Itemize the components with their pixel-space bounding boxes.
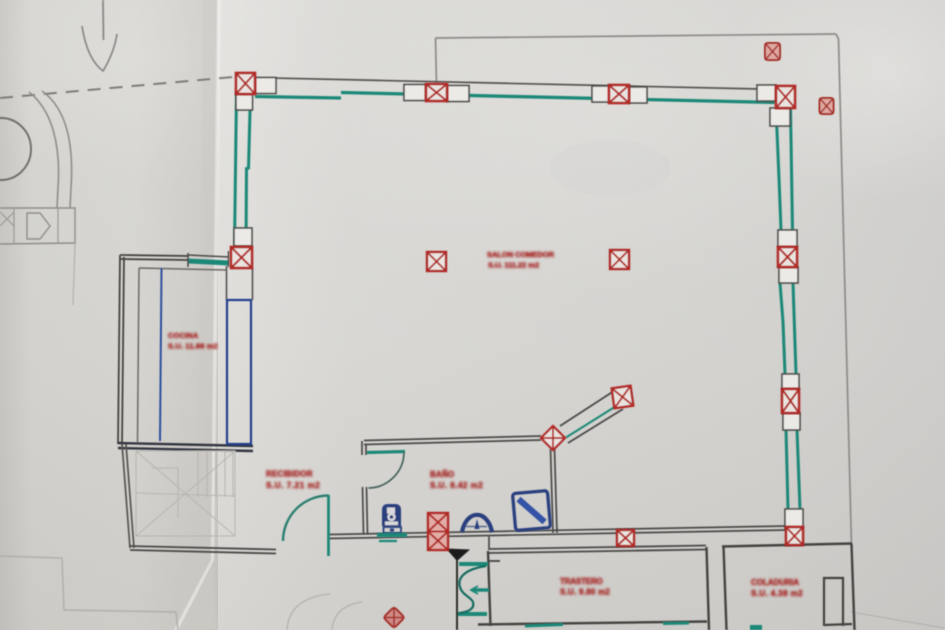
svg-text:RECIBIDOR: RECIBIDOR: [266, 470, 313, 479]
svg-text:S.U. 11.88 m2: S.U. 11.88 m2: [168, 342, 218, 351]
svg-text:SALON COMEDOR: SALON COMEDOR: [487, 250, 555, 259]
svg-text:COLADURIA: COLADURIA: [751, 578, 799, 587]
svg-text:TRASTERO: TRASTERO: [560, 577, 603, 586]
svg-text:S.U. 4.38 m2: S.U. 4.38 m2: [751, 589, 803, 598]
svg-text:S.U. 8.42 m2: S.U. 8.42 m2: [430, 481, 483, 490]
svg-text:S.U. 7.21 m2: S.U. 7.21 m2: [266, 481, 320, 490]
svg-text:S.U. 9.80 m2: S.U. 9.80 m2: [560, 588, 610, 597]
svg-text:COCINA: COCINA: [168, 331, 199, 340]
svg-text:BAÑO: BAÑO: [430, 470, 454, 479]
svg-text:S.U. 111.22 m2: S.U. 111.22 m2: [488, 261, 539, 270]
